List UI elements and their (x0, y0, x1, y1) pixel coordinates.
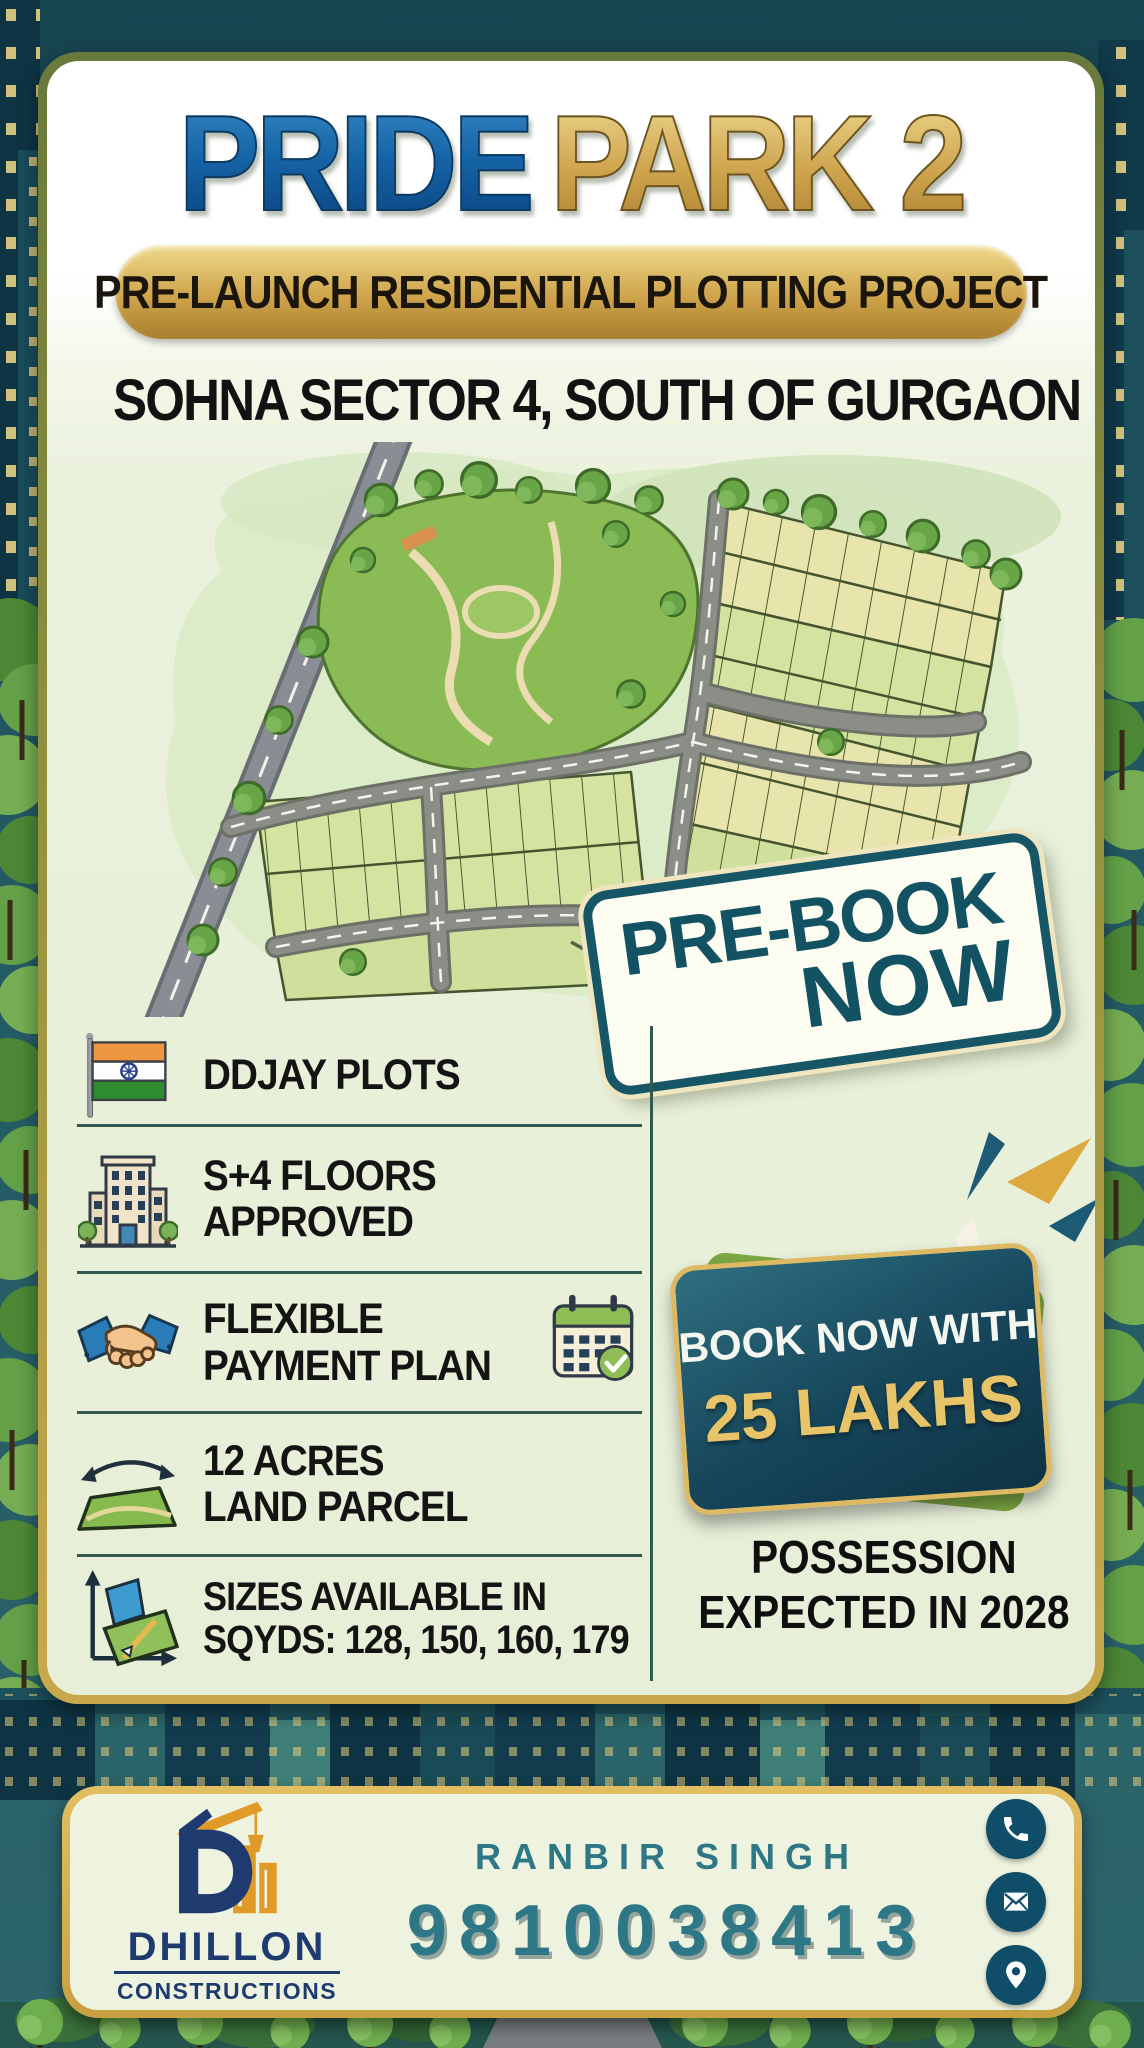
phone-number: 9810038413 (358, 1890, 976, 1972)
footer-contact-card: DHILLON CONSTRUCTIONS RANBIR SINGH 98100… (62, 1786, 1082, 2018)
contact-block: RANBIR SINGH 9810038413 (358, 1832, 976, 1972)
offer-column: BOOK NOW WITH 25 LAKHS POSSESSION EXPECT… (650, 1026, 1095, 1681)
india-flag-icon (77, 1029, 179, 1121)
feature-s4-floors: S+4 FLOORS APPROVED (77, 1127, 642, 1274)
feature-plot-sizes: SIZES AVAILABLE IN SQYDS: 128, 150, 160,… (77, 1557, 642, 1681)
handshake-icon (77, 1299, 179, 1387)
details-columns: DDJAY PLOTS (77, 1026, 1065, 1681)
main-poster-card: PRIDE PARK 2 PRE-LAUNCH RESIDENTIAL PLOT… (38, 52, 1104, 1704)
agent-name: RANBIR SINGH (358, 1836, 976, 1878)
plot-size-icon (77, 1567, 179, 1671)
feature-ddjay-plots: DDJAY PLOTS (77, 1026, 642, 1127)
feature-12-acres: 12 ACRES LAND PARCEL (77, 1414, 642, 1557)
land-area-icon (77, 1436, 179, 1532)
contact-icons (976, 1799, 1056, 2005)
possession-note: POSSESSION EXPECTED IN 2028 (673, 1504, 1095, 1640)
offer-cluster: BOOK NOW WITH 25 LAKHS (673, 1026, 1095, 1504)
dhillon-logo-icon (152, 1800, 302, 1922)
offer-badge: BOOK NOW WITH 25 LAKHS (669, 1241, 1054, 1516)
project-title: PRIDE PARK 2 (47, 95, 1095, 231)
builder-name: DHILLON (96, 1927, 358, 1967)
builder-subtitle: CONSTRUCTIONS (114, 1971, 340, 2005)
offer-line2: 25 LAKHS (701, 1359, 1025, 1457)
phone-icon (986, 1799, 1046, 1859)
builder-logo: DHILLON CONSTRUCTIONS (96, 1800, 358, 2005)
project-title-park2: PARK 2 (550, 87, 963, 239)
calendar-check-icon (547, 1291, 639, 1394)
project-title-pride: PRIDE (179, 87, 531, 239)
subtitle-banner-text: PRE-LAUNCH RESIDENTIAL PLOTTING PROJECT (94, 265, 1047, 319)
features-list: DDJAY PLOTS (77, 1026, 642, 1681)
email-icon (986, 1872, 1046, 1932)
feature-flexible-payment: FLEXIBLE PAYMENT PLAN (77, 1274, 642, 1414)
right-building-silhouette (1098, 40, 1144, 630)
location-pin-icon (986, 1945, 1046, 2005)
subtitle-banner: PRE-LAUNCH RESIDENTIAL PLOTTING PROJECT (115, 245, 1027, 339)
middle-city-strip (0, 1688, 1144, 1800)
location-heading: SOHNA SECTOR 4, SOUTH OF GURGAON (47, 367, 1095, 434)
poster-canvas: PRIDE PARK 2 PRE-LAUNCH RESIDENTIAL PLOT… (0, 0, 1144, 2048)
apartment-building-icon (77, 1147, 179, 1251)
